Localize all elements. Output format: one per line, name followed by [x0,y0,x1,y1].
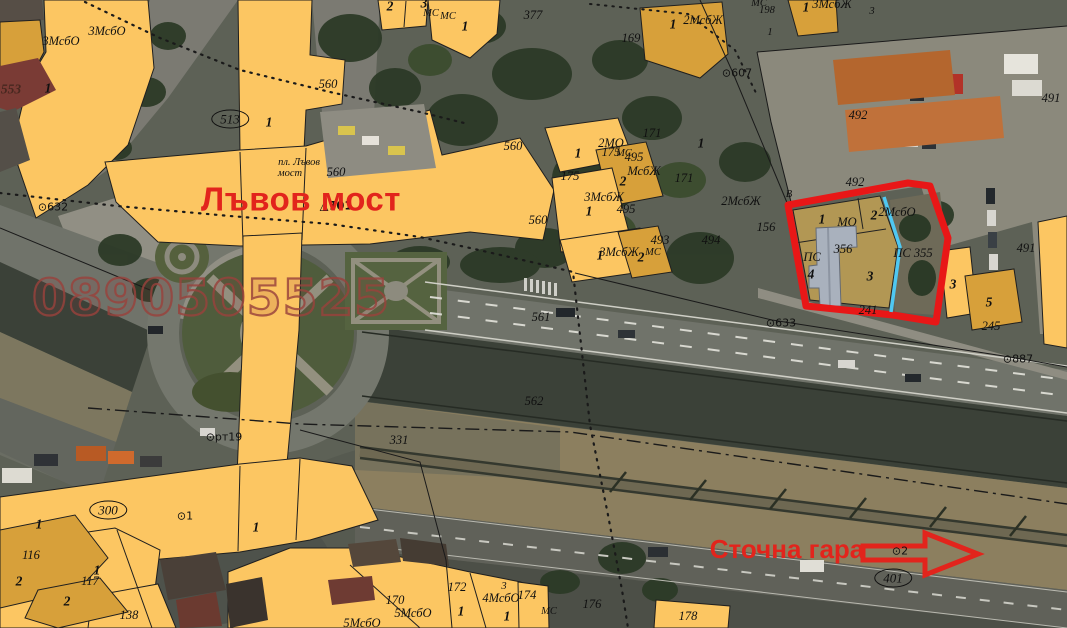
map-label: 560 [529,214,548,227]
cadastral-map[interactable]: 3МсбО3МсбО55315131пл. Лъвовмост560560⊙63… [0,0,1067,628]
map-label: 1 [253,520,260,534]
map-label: 3 [501,582,506,593]
map-label: 1 [45,81,52,95]
map-label: 1 [36,517,43,531]
map-label: 241 [859,304,878,317]
map-label: 156 [757,221,776,234]
map-label: 2МсбЖ [683,14,723,27]
map-label: 1 [819,212,826,226]
map-label: 560 [319,78,338,91]
point-633: ⊙633 [766,318,796,329]
point-1: ⊙1 [177,511,193,522]
map-label: 1 [586,204,593,218]
map-label: 1 [504,609,511,623]
map-label: 4МсбО [482,592,519,605]
map-label: 562 [525,395,544,408]
map-label: 170 [386,594,405,607]
map-label: ПС [803,251,820,264]
map-label: МсбЖ [627,165,660,178]
map-label: 117 [81,575,99,588]
map-label: 3 [867,269,874,283]
map-label: 175 [561,170,580,183]
map-label: 1 [767,28,772,39]
map-label: МО [837,216,856,229]
map-label: 2 [64,594,71,608]
map-label: 174 [518,589,537,602]
map-label: 171 [675,172,694,185]
circled-number-401: 401 [874,569,912,588]
point-887: ⊙887 [1003,354,1033,365]
map-label: 3МсбЖ [812,0,852,10]
map-label: 116 [22,549,40,562]
map-label: 171 [643,127,662,140]
map-label: МС [423,9,439,20]
map-label: 2МсбО [878,206,915,219]
circled-number-513: 513 [211,110,249,129]
map-label: МС [645,248,661,259]
map-label: 494 [702,234,721,247]
map-label: 491 [1042,92,1061,105]
map-label: 492 [849,109,868,122]
map-label: 2 [620,174,627,188]
map-label: 5МсбО [394,607,431,620]
lion-bridge-label: Лъвов мост [201,183,401,216]
map-label: ПС 355 [893,247,932,260]
map-label: 178 [679,610,698,623]
map-label: 1 [803,0,810,14]
map-label: 1 [462,19,469,33]
map-label: 3МсбЖ [599,246,639,259]
map-label: 553 [1,82,21,96]
map-label: 331 [390,434,409,447]
map-label: 493 [651,234,670,247]
map-label: 560 [504,140,523,153]
map-label: 492 [846,176,865,189]
map-label: 1 [266,115,273,129]
map-label: 4 [808,267,815,281]
map-label: пл. Лъвов [278,158,320,169]
freight-station-label: Сточна гара [710,536,865,562]
point-607: ⊙607 [722,68,752,79]
map-label: 5МсбО [343,617,380,628]
point-632: ⊙632 [38,202,68,213]
point-2: ⊙2 [892,546,908,557]
watermark-phone-number: 0890505525 [32,269,390,327]
map-label: 198 [759,6,775,17]
map-label: 491 [1017,242,1036,255]
map-label: 3 [869,7,874,18]
map-label: 169 [622,32,641,45]
map-label: 1 [458,604,465,618]
map-label: 3МсбО [42,35,79,48]
map-label: 138 [120,609,139,622]
map-label: мост [278,169,302,180]
map-label: 377 [524,9,543,22]
map-label: 356 [834,243,853,256]
map-label: 1 [698,136,705,150]
map-label: 495 [617,203,636,216]
map-label: 2 [16,574,23,588]
map-label: В [786,190,792,201]
map-label: 561 [532,311,551,324]
map-label: МС [440,12,456,23]
map-label: 245 [982,320,1001,333]
map-label: 1 [670,17,677,31]
map-label: 176 [583,598,602,611]
map-label: 1 [575,146,582,160]
map-label: 560 [327,166,346,179]
map-label: 3МсбО [88,25,125,38]
map-label: МС [541,607,557,618]
map-label: 2 [387,0,394,13]
point-rt19: ⊙рт19 [206,432,243,443]
map-label: 172 [448,581,467,594]
map-label: 2 [871,208,878,222]
map-label: 5 [986,295,993,309]
circled-number-300: 300 [89,501,127,520]
map-label: 495 [625,151,644,164]
map-label: 3 [950,277,957,291]
map-label: 2 [638,250,645,264]
map-label: 2МсбЖ [721,195,761,208]
